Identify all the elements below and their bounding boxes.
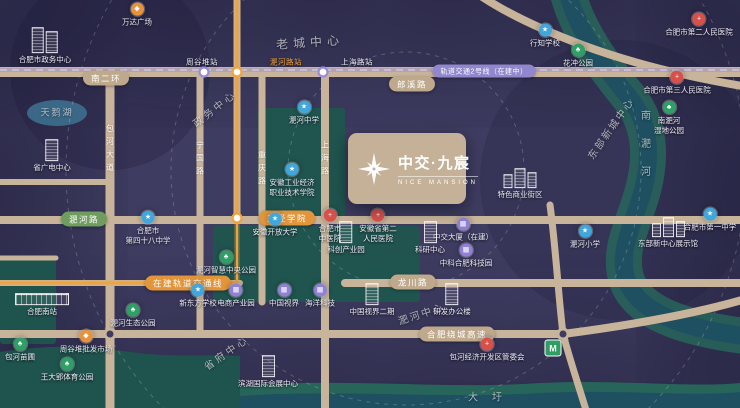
poi-commercial-marker[interactable]: ◆周谷堆批发市场 [60,330,113,355]
poi-label: 合肥市政务中心 [19,55,72,65]
poi-park-marker[interactable]: ♣南淝河湿地公园 [654,101,684,136]
poi-office-marker[interactable]: ▦电商产业园 [217,284,255,309]
poi-building-marker[interactable]: 科创产业园 [327,221,365,255]
school-icon: ★ [286,163,299,176]
park-icon: ♣ [220,251,233,264]
poi-label: 行知学校 [530,39,560,49]
metro-station-label: 淝河路站 [270,57,302,68]
park-icon: ♣ [127,304,140,317]
school-icon: ★ [269,213,282,226]
poi-park-marker[interactable]: ♣淝河智慧中央公园 [196,251,256,276]
poi-label: 特色商业街区 [498,190,543,200]
office-icon: ▦ [460,244,473,257]
district-label: 南淝河 [637,110,652,194]
poi-school-marker[interactable]: ★合肥市第四十八中学 [126,211,171,246]
office-icon: ▦ [314,284,327,297]
hospital-icon: + [372,209,385,222]
poi-station-building-marker[interactable]: 合肥南站 [15,293,69,317]
poi-label: 东部新中心展示馆 [638,239,698,249]
poi-label: 中科合肥科技园 [440,259,493,269]
school-icon: ★ [298,101,311,114]
poi-school-marker[interactable]: ★合肥市第一中学 [684,208,737,233]
hospital-icon: + [481,338,494,351]
poi-label: 南淝河湿地公园 [654,116,684,136]
poi-label: 科创产业园 [327,245,365,255]
poi-label: 研发办公楼 [433,307,471,317]
project-name-en: NICE MANSION [398,176,478,186]
metro-sign-icon: M [545,340,562,357]
poi-label: 安徽工业经济职业技术学院 [270,178,315,198]
poi-label: 淝河小学 [570,240,600,250]
poi-school-marker[interactable]: ★淝河小学 [570,225,600,250]
poi-label: 安徽开放大学 [253,228,298,238]
park-icon: ♣ [14,338,27,351]
school-icon: ★ [142,211,155,224]
hospital-icon: + [671,71,684,84]
district-label: 天鹅湖 [40,106,73,119]
poi-school-marker[interactable]: ★新东方学校 [179,284,217,309]
station-building-icon [15,293,69,305]
poi-school-marker[interactable]: ★淝河中学 [289,101,319,126]
poi-label: 中国视界 [269,299,299,309]
poi-park-marker[interactable]: ♣花冲公园 [563,44,593,69]
road-label-pill: 南二环 [83,71,129,86]
school-icon: ★ [192,284,205,297]
school-icon: ★ [579,225,592,238]
building-icon [46,139,59,161]
building-icon [366,283,379,305]
poi-label: 合肥市第二人民医院 [665,28,733,38]
poi-label: 合肥南站 [27,307,57,317]
road-name-vertical: 宁国路 [195,141,206,180]
poi-label: 安徽省第二人民医院 [359,224,397,244]
poi-label: 周谷堆批发市场 [60,345,113,355]
poi-hospital-marker[interactable]: +合肥市第三人民医院 [643,71,711,96]
poi-school-marker[interactable]: ★安徽开放大学 [253,213,298,238]
hospital-icon: + [693,13,706,26]
metro-station-label: 周谷堆站 [186,57,218,68]
hospital-icon: + [324,209,337,222]
poi-building-marker[interactable]: 研发办公楼 [433,283,471,317]
school-icon: ★ [539,24,552,37]
park-icon: ♣ [663,101,676,114]
poi-building-group-marker[interactable]: 特色商业街区 [498,168,543,200]
poi-hospital-marker[interactable]: +合肥市第二人民医院 [665,13,733,38]
poi-park-marker[interactable]: ♣包河苗圃 [5,338,35,363]
poi-label: 中国视界二期 [350,307,395,317]
poi-label: 合肥市第一中学 [684,223,737,233]
poi-label: 万达广场 [122,18,152,28]
poi-label: 合肥市第四十八中学 [126,226,171,246]
poi-label: 科研中心 [415,245,445,255]
road-label-pill: 淝河路 [61,212,107,227]
road-name-vertical: 重庆路 [257,151,268,190]
poi-label: 包河苗圃 [5,353,35,363]
poi-label: 电商产业园 [217,299,255,309]
poi-hospital-marker[interactable]: +安徽省第二人民医院 [359,209,397,244]
poi-building-marker[interactable]: 中国视界二期 [350,283,395,317]
metro-station-label: 上海路站 [341,57,373,68]
poi-hospital-marker[interactable]: +包河经济开发区管委会 [450,338,525,363]
poi-label: 淝河智慧中央公园 [196,266,256,276]
poi-label: 包河经济开发区管委会 [450,353,525,363]
poi-park-marker[interactable]: ♣淝河生态公园 [111,304,156,329]
location-map: 中交·九宸 NICE MANSION 老城中心政务中心东部新城中心省府中心淝河中… [0,0,740,408]
building-icon [424,221,437,243]
road-label-pill: 郎溪路 [389,77,435,92]
building-icon [262,355,275,377]
commercial-icon: ◆ [80,330,93,343]
building-group-icon [504,168,537,188]
poi-label: 王大郢体育公园 [41,373,94,383]
poi-building-marker[interactable]: 科研中心 [415,221,445,255]
road-name-vertical: 包河大道 [105,124,116,176]
road-name-vertical: 上海路 [320,141,331,180]
building-group-icon [652,217,685,237]
poi-school-marker[interactable]: ★行知学校 [530,24,560,49]
poi-office-marker[interactable]: ▦海洋科技 [305,284,335,309]
office-icon: ▦ [457,218,470,231]
poi-building-marker[interactable]: 滨湖国际会展中心 [238,355,298,389]
building-icon [340,221,353,243]
poi-label: 海洋科技 [305,299,335,309]
park-icon: ♣ [61,358,74,371]
office-icon: ▦ [230,284,243,297]
road-label-pill: 龙川路 [390,275,436,290]
park-icon: ♣ [572,44,585,57]
poi-office-marker[interactable]: ▦中国视界 [269,284,299,309]
poi-park-marker[interactable]: ♣王大郢体育公园 [41,358,94,383]
building-towers-icon [32,27,58,53]
office-icon: ▦ [278,284,291,297]
poi-metro-sign-marker[interactable]: M [545,340,562,357]
project-name-cn: 中交·九宸 [398,152,471,173]
road-label-pill: 轨道交通2号线（在建中） [433,65,536,78]
project-logo-card[interactable]: 中交·九宸 NICE MANSION [348,133,466,204]
poi-label: 滨湖国际会展中心 [238,379,298,389]
poi-label: 淝河中学 [289,116,319,126]
poi-label: 淝河生态公园 [111,319,156,329]
building-icon [446,283,459,305]
poi-building-towers-marker[interactable]: 合肥市政务中心 [19,27,72,65]
commercial-icon: ◆ [131,3,144,16]
school-icon: ★ [704,208,717,221]
poi-office-marker[interactable]: ▦中科合肥科技园 [440,244,493,269]
poi-label: 省广电中心 [33,163,71,173]
poi-label: 新东方学校 [179,299,217,309]
district-label: 大圩 [468,389,516,404]
poi-school-marker[interactable]: ★安徽工业经济职业技术学院 [270,163,315,198]
poi-label: 花冲公园 [563,59,593,69]
poi-commercial-marker[interactable]: ◆万达广场 [122,3,152,28]
poi-building-marker[interactable]: 省广电中心 [33,139,71,173]
compass-star-icon [356,147,392,191]
poi-label: 合肥市第三人民医院 [643,86,711,96]
